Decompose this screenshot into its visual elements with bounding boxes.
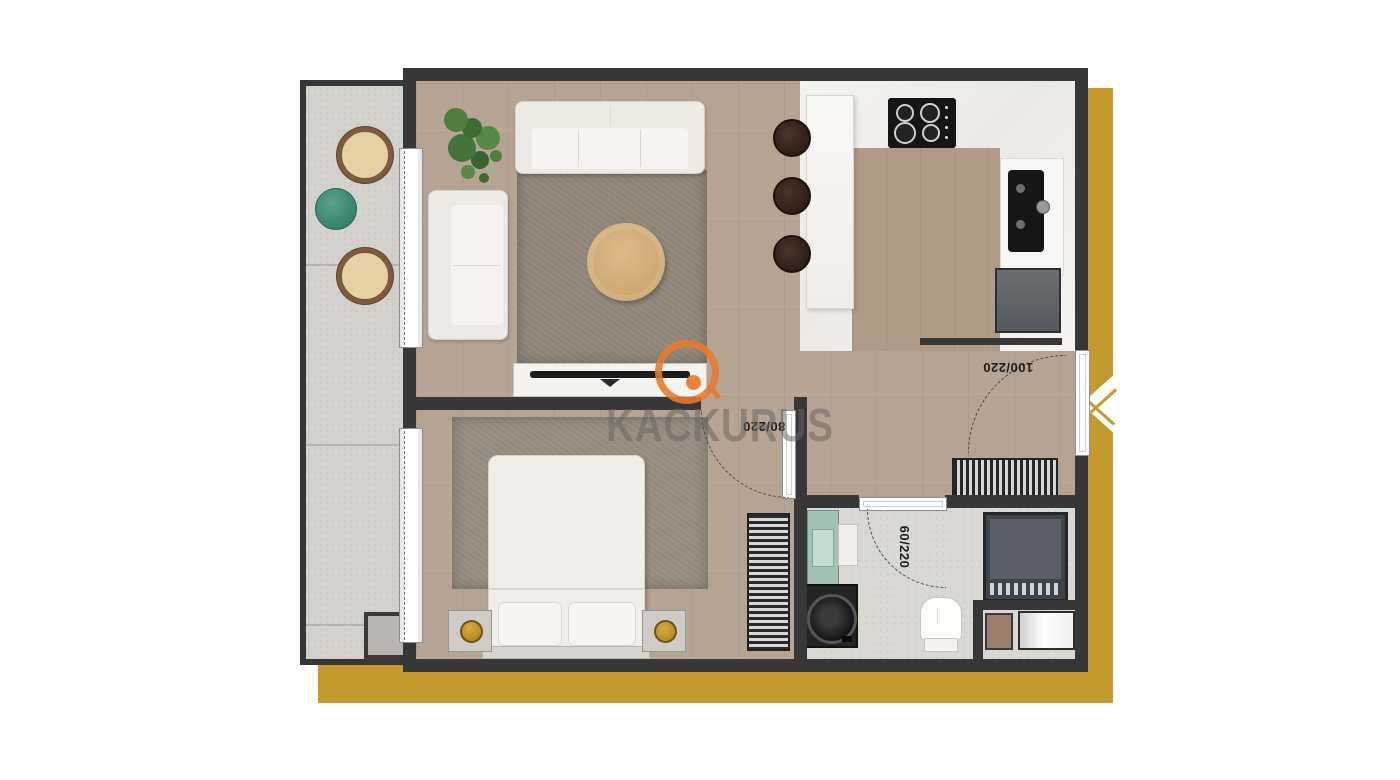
balcony-wall-left [300, 80, 306, 665]
plant-icon [444, 108, 468, 132]
wall-left-upper [403, 68, 416, 148]
wall-right-lower [1075, 452, 1088, 672]
doormat [1018, 611, 1075, 650]
bathroom-door-label: 60/220 [890, 515, 912, 579]
wall-top [403, 68, 1088, 81]
kitchen-bar-counter [806, 95, 854, 309]
living-sliding-door [399, 148, 423, 348]
entry-door-label: 100/220 [970, 353, 1046, 375]
balcony-wall-bottom [300, 659, 416, 665]
shoe-cabinet [952, 458, 1058, 498]
faucet-icon [1036, 200, 1050, 214]
wall-bathroom-left [807, 495, 859, 508]
bathroom-niche-wall [973, 600, 983, 659]
tv-stand [600, 379, 620, 387]
entry-door [1075, 350, 1090, 456]
wall-right-upper [1075, 68, 1088, 352]
balcony-wall-top [300, 80, 416, 86]
floor-plan-page: 100/220 80/220 60/220 KACKURUS [0, 0, 1400, 780]
cooktop [888, 98, 956, 148]
bar-stool [773, 119, 811, 157]
bedroom-sliding-door [399, 428, 423, 643]
bar-stool [773, 235, 811, 273]
bathroom-cabinet [838, 524, 858, 566]
vanity [807, 510, 839, 586]
balcony-chair [337, 127, 393, 183]
loveseat [428, 190, 508, 340]
wall-living-bedroom [416, 397, 701, 410]
lamp-icon [460, 620, 483, 643]
coffee-table-small [549, 247, 605, 303]
tv-unit [513, 363, 707, 397]
kitchen-sink [1008, 170, 1044, 252]
fridge [995, 268, 1061, 333]
pillow [568, 602, 636, 646]
hall-cabinet [985, 613, 1013, 650]
washing-machine [800, 584, 858, 648]
kitchen-island-top [852, 148, 1000, 351]
wall-bottom [403, 659, 1088, 672]
lamp-icon [654, 620, 677, 643]
toilet [920, 597, 962, 641]
bar-stool [773, 177, 811, 215]
kitchen-counter-edge [920, 338, 1062, 345]
shower-drain-icon [990, 583, 1061, 595]
shower [983, 512, 1068, 602]
headboard [482, 646, 650, 659]
toilet-tank [924, 638, 958, 652]
pillow [498, 602, 562, 646]
wardrobe [747, 513, 790, 651]
balcony-side-table [315, 188, 357, 230]
bedroom-door-label: 80/220 [733, 414, 795, 434]
wall-left-lower [403, 643, 416, 672]
sofa [515, 101, 705, 174]
tv-screen [530, 371, 690, 378]
wall-bathroom-right [945, 495, 1075, 508]
balcony-chair [337, 248, 393, 304]
bathroom-niche-wall-top [983, 600, 1075, 610]
wall-left-mid [403, 348, 416, 428]
